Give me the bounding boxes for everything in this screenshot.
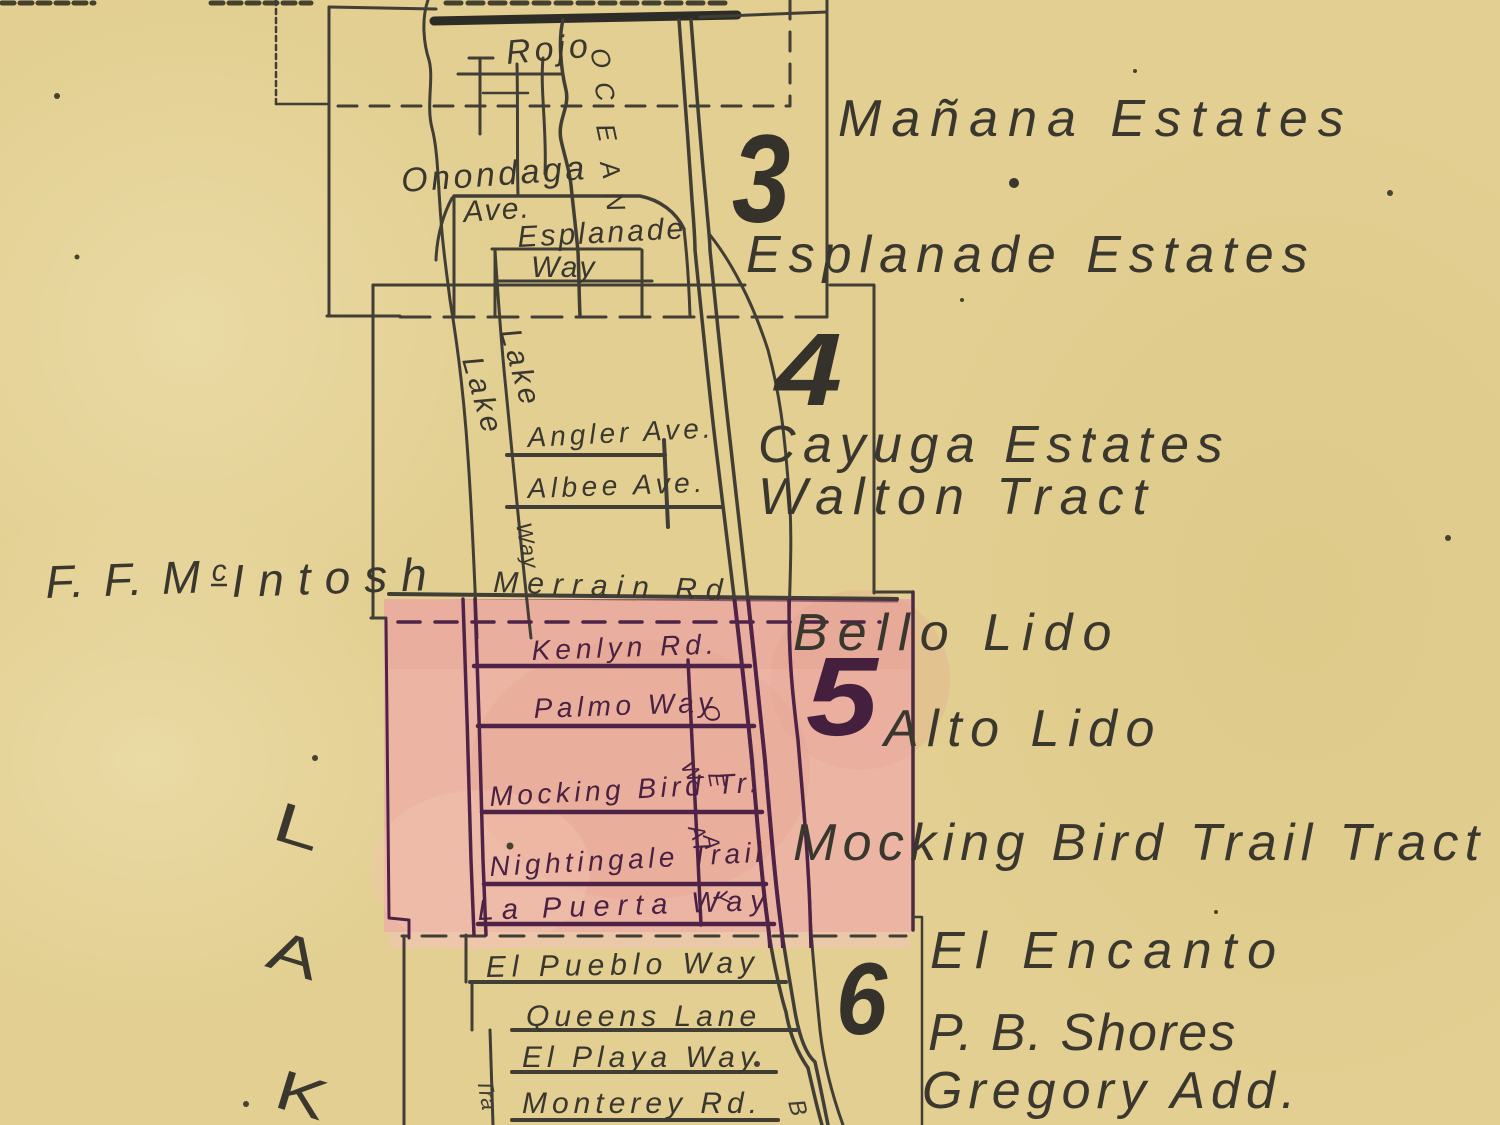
svg-text:4: 4	[773, 312, 842, 427]
svg-text:Walton Tract: Walton Tract	[758, 468, 1156, 526]
svg-text:Gregory Add.: Gregory Add.	[922, 1062, 1301, 1120]
svg-text:Rojo: Rojo	[504, 27, 593, 72]
svg-text:El Pueblo Way: El Pueblo Way	[486, 946, 761, 984]
svg-text:6: 6	[836, 941, 888, 1056]
svg-text:Kenlyn Rd.: Kenlyn Rd.	[531, 628, 719, 666]
svg-text:Alto Lido: Alto Lido	[881, 700, 1163, 758]
svg-text:Mañana Estates: Mañana Estates	[838, 90, 1354, 148]
svg-text:El Playa Way: El Playa Way	[522, 1041, 760, 1074]
svg-text:P. B. Shores: P. B. Shores	[928, 1004, 1237, 1062]
svg-text:Esplanade Estates: Esplanade Estates	[746, 226, 1316, 284]
svg-text:Albee Ave.: Albee Ave.	[525, 467, 707, 504]
svg-text:Mocking Bird Trail Tract: Mocking Bird Trail Tract	[793, 814, 1485, 872]
svg-text:El Encanto: El Encanto	[930, 922, 1287, 980]
svg-text:Way: Way	[531, 251, 596, 284]
svg-text:Intosh: Intosh	[231, 548, 442, 607]
svg-text:F. F. M: F. F. M	[45, 551, 205, 608]
svg-text:c: c	[211, 554, 227, 588]
svg-text:Cayuga Estates: Cayuga Estates	[758, 416, 1230, 474]
svg-text:Palmo Way: Palmo Way	[533, 687, 717, 724]
svg-text:Bello Lido: Bello Lido	[793, 604, 1121, 662]
svg-text:Queens Lane: Queens Lane	[526, 1000, 761, 1033]
svg-text:Monterey Rd.: Monterey Rd.	[522, 1087, 762, 1120]
